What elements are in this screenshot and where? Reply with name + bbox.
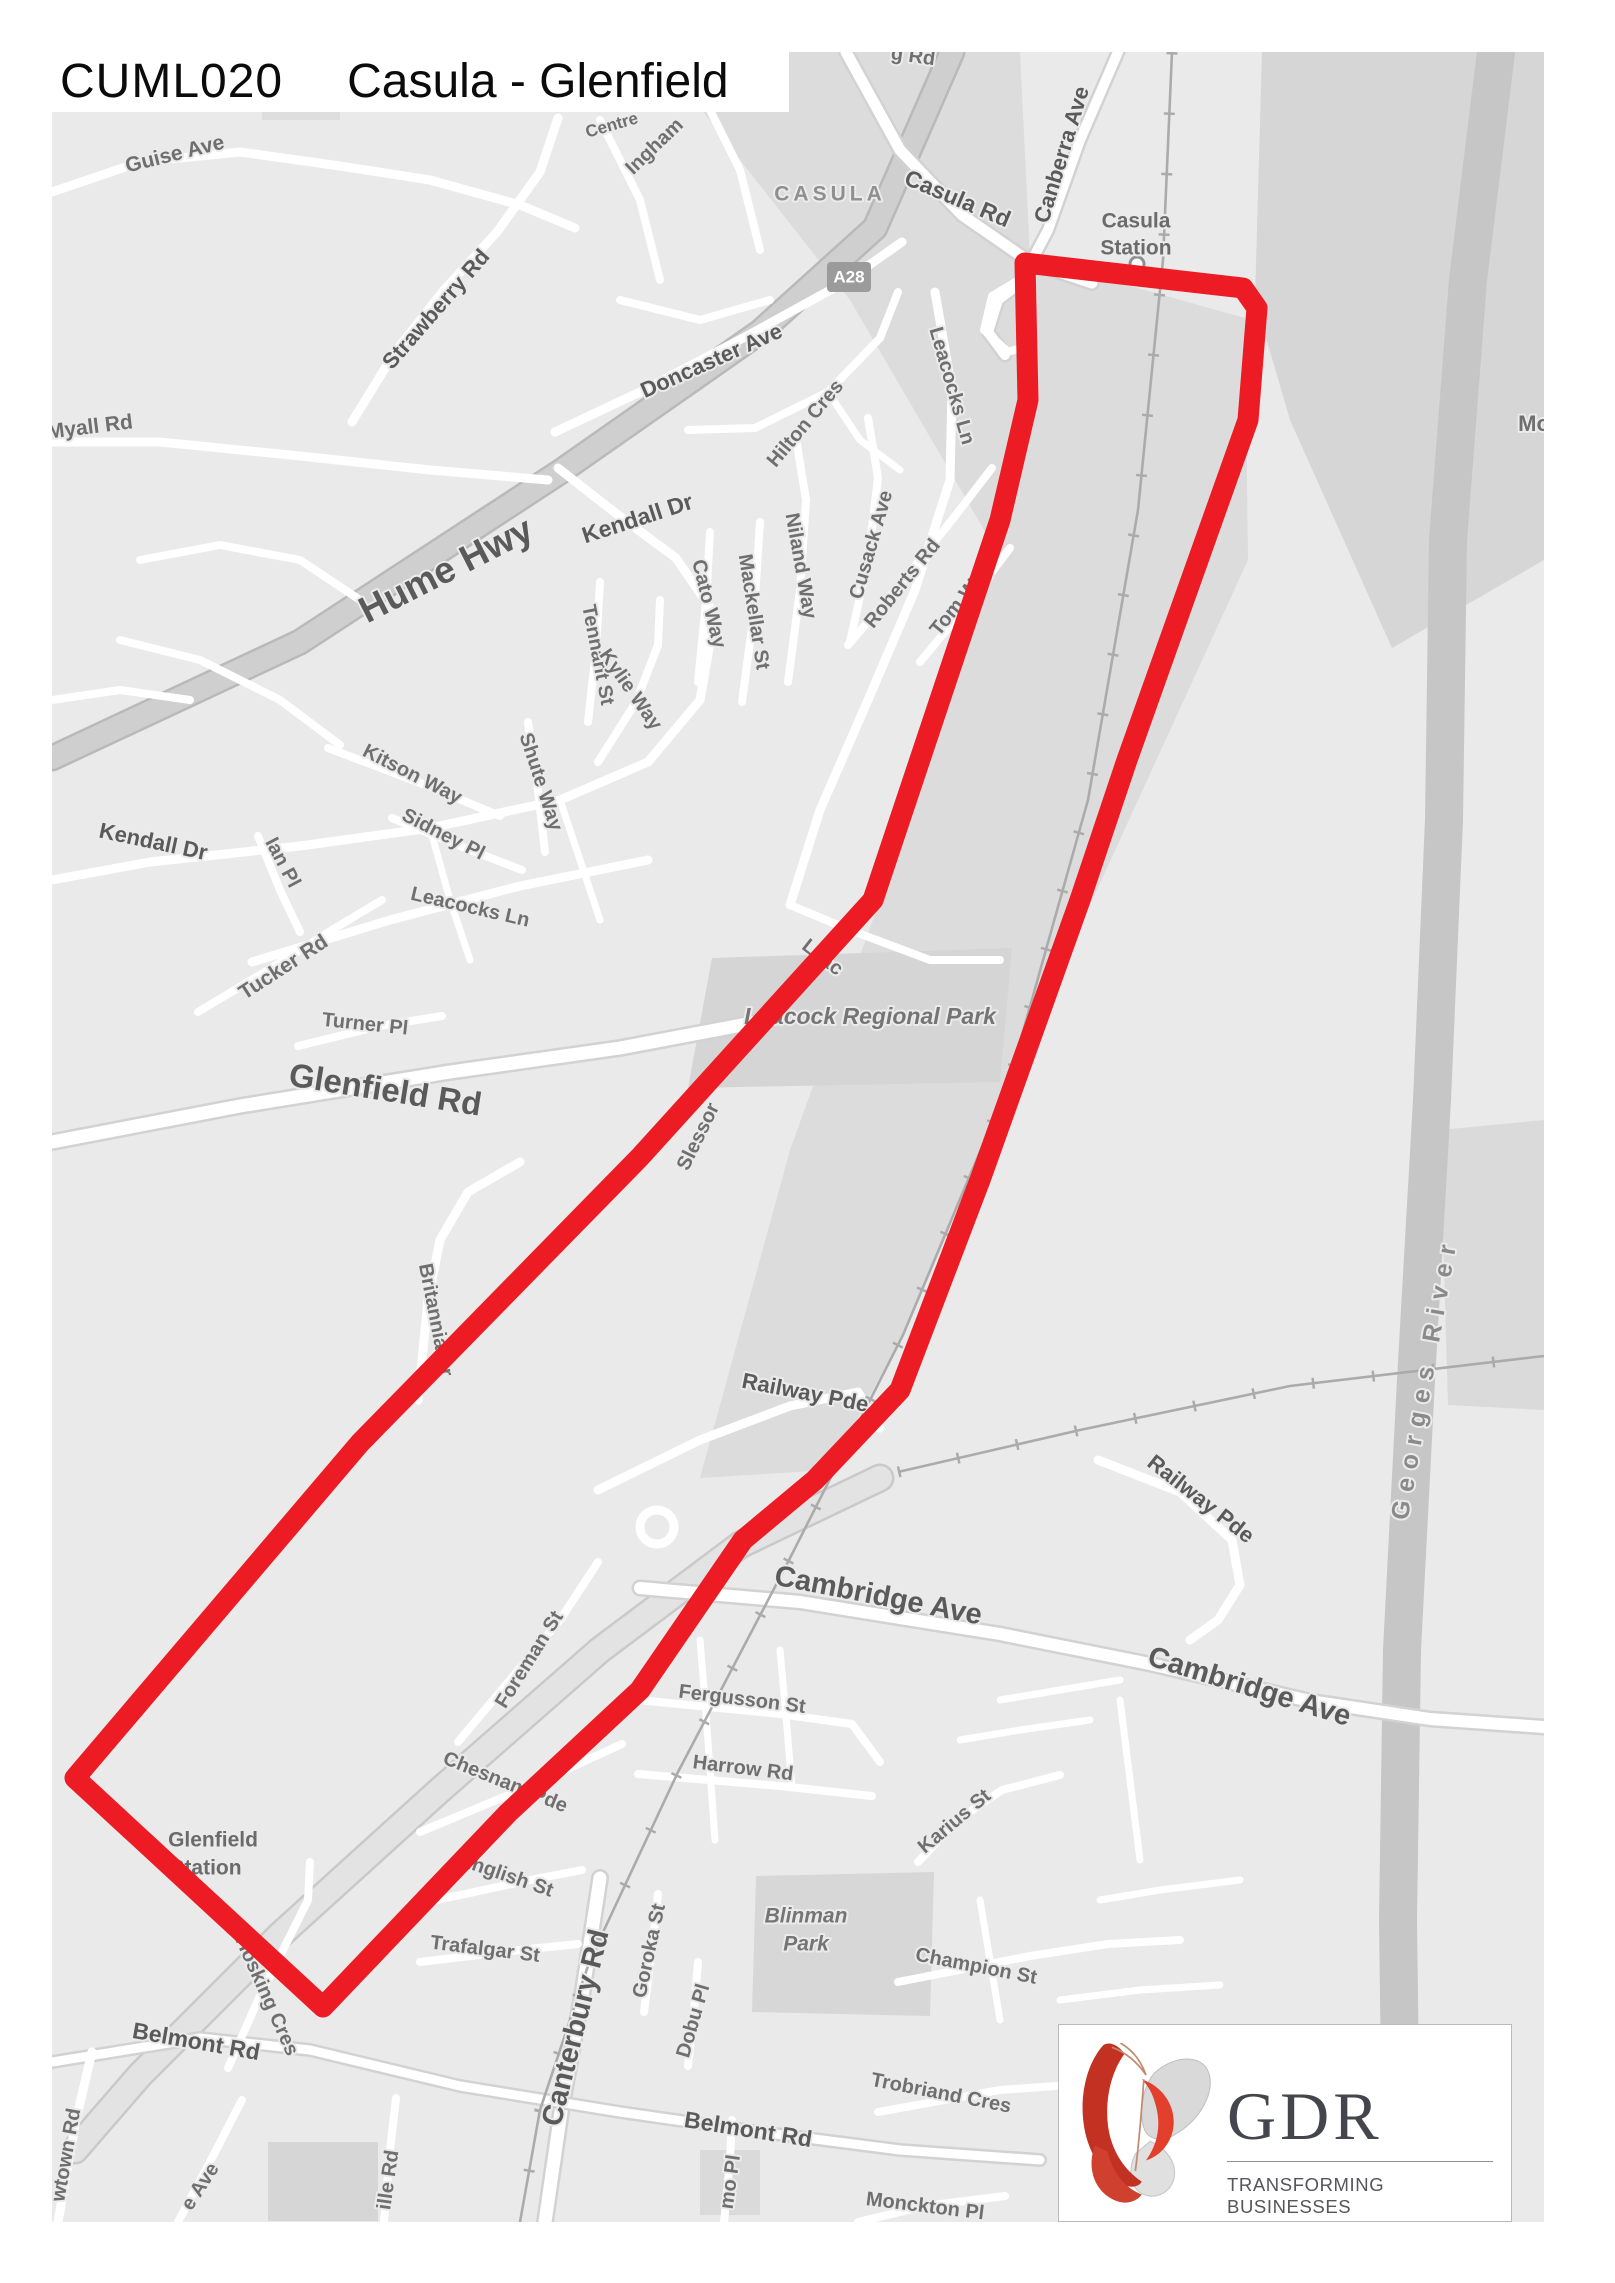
- logo-divider: [1227, 2161, 1493, 2162]
- map-code: CUML020: [60, 54, 283, 109]
- logo-tagline: TRANSFORMING BUSINESSES: [1227, 2174, 1511, 2218]
- gdr-wordmark: GDR: [1227, 2077, 1383, 2156]
- street-label-mo: Mo: [1518, 411, 1550, 436]
- map-canvas: A28Hume HwyGlenfield RdCambridge AveCamb…: [0, 0, 1615, 2283]
- street-label-park: Park: [783, 1933, 830, 1956]
- butterfly-icon: [1071, 2043, 1221, 2203]
- map-title-bar: CUML020 Casula - Glenfield: [52, 50, 789, 112]
- page-title: Casula - Glenfield: [347, 54, 729, 109]
- map-report-page: A28Hume HwyGlenfield RdCambridge AveCamb…: [0, 0, 1615, 2283]
- street-label-casula: Casula: [1102, 210, 1171, 233]
- route-badge-label: A28: [833, 267, 864, 286]
- street-label-station: Station: [1100, 237, 1171, 260]
- patch-blinman-park: [752, 1872, 934, 2016]
- gdr-logo: GDR TRANSFORMING BUSINESSES: [1058, 2024, 1512, 2222]
- street-label-glenfield: Glenfield: [168, 1829, 258, 1852]
- street-label-casula: CASULA: [774, 183, 886, 206]
- street-label-blinman: Blinman: [765, 1905, 848, 1928]
- patch-block-sw: [268, 2142, 378, 2221]
